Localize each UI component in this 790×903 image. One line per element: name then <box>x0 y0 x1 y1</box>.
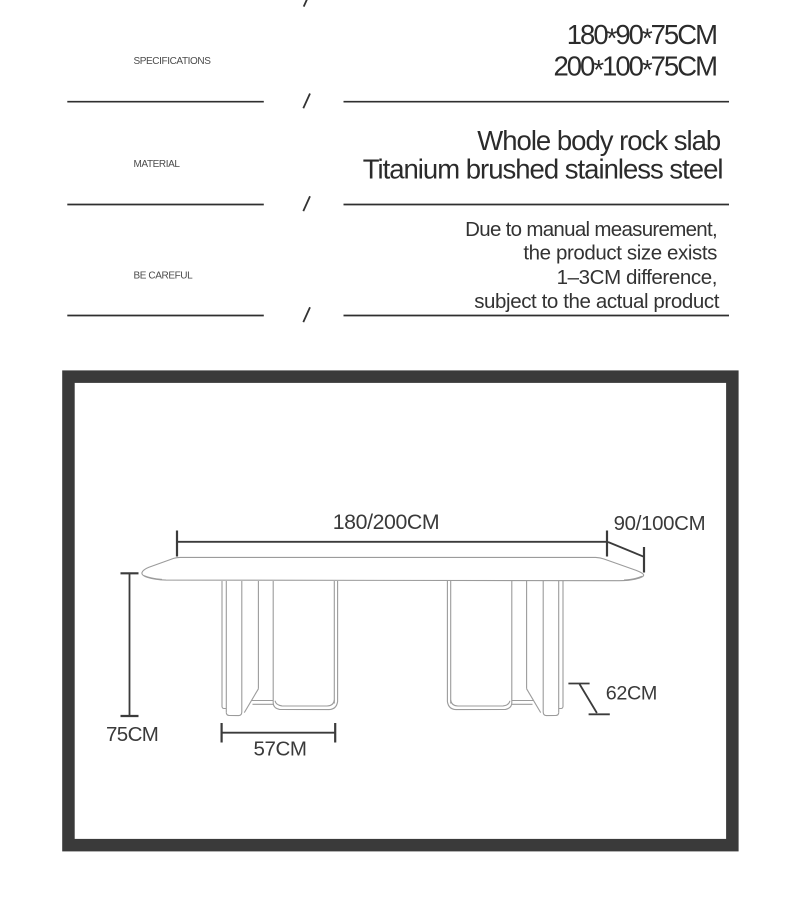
svg-text:90/100CM: 90/100CM <box>614 513 706 535</box>
svg-text:62CM: 62CM <box>606 683 657 705</box>
svg-text:Titanium brushed stainless ste: Titanium brushed stainless steel <box>363 154 723 185</box>
svg-text:BE CAREFUL: BE CAREFUL <box>134 271 194 282</box>
svg-text:180/200CM: 180/200CM <box>333 510 440 534</box>
svg-text:Whole body rock slab: Whole body rock slab <box>477 125 721 156</box>
svg-text:MATERIAL: MATERIAL <box>134 159 181 170</box>
svg-text:subject to the actual product: subject to the actual product <box>474 290 720 313</box>
svg-text:the product size exists: the product size exists <box>523 242 717 265</box>
svg-text:75CM: 75CM <box>106 723 158 746</box>
svg-text:180*90*75CM: 180*90*75CM <box>567 19 716 54</box>
svg-text:57CM: 57CM <box>253 737 306 760</box>
svg-text:1–3CM difference,: 1–3CM difference, <box>557 266 717 289</box>
svg-text:SPECIFICATIONS: SPECIFICATIONS <box>134 56 212 67</box>
svg-text:200*100*75CM: 200*100*75CM <box>553 51 716 86</box>
svg-text:Due to manual measurement,: Due to manual measurement, <box>465 218 717 241</box>
